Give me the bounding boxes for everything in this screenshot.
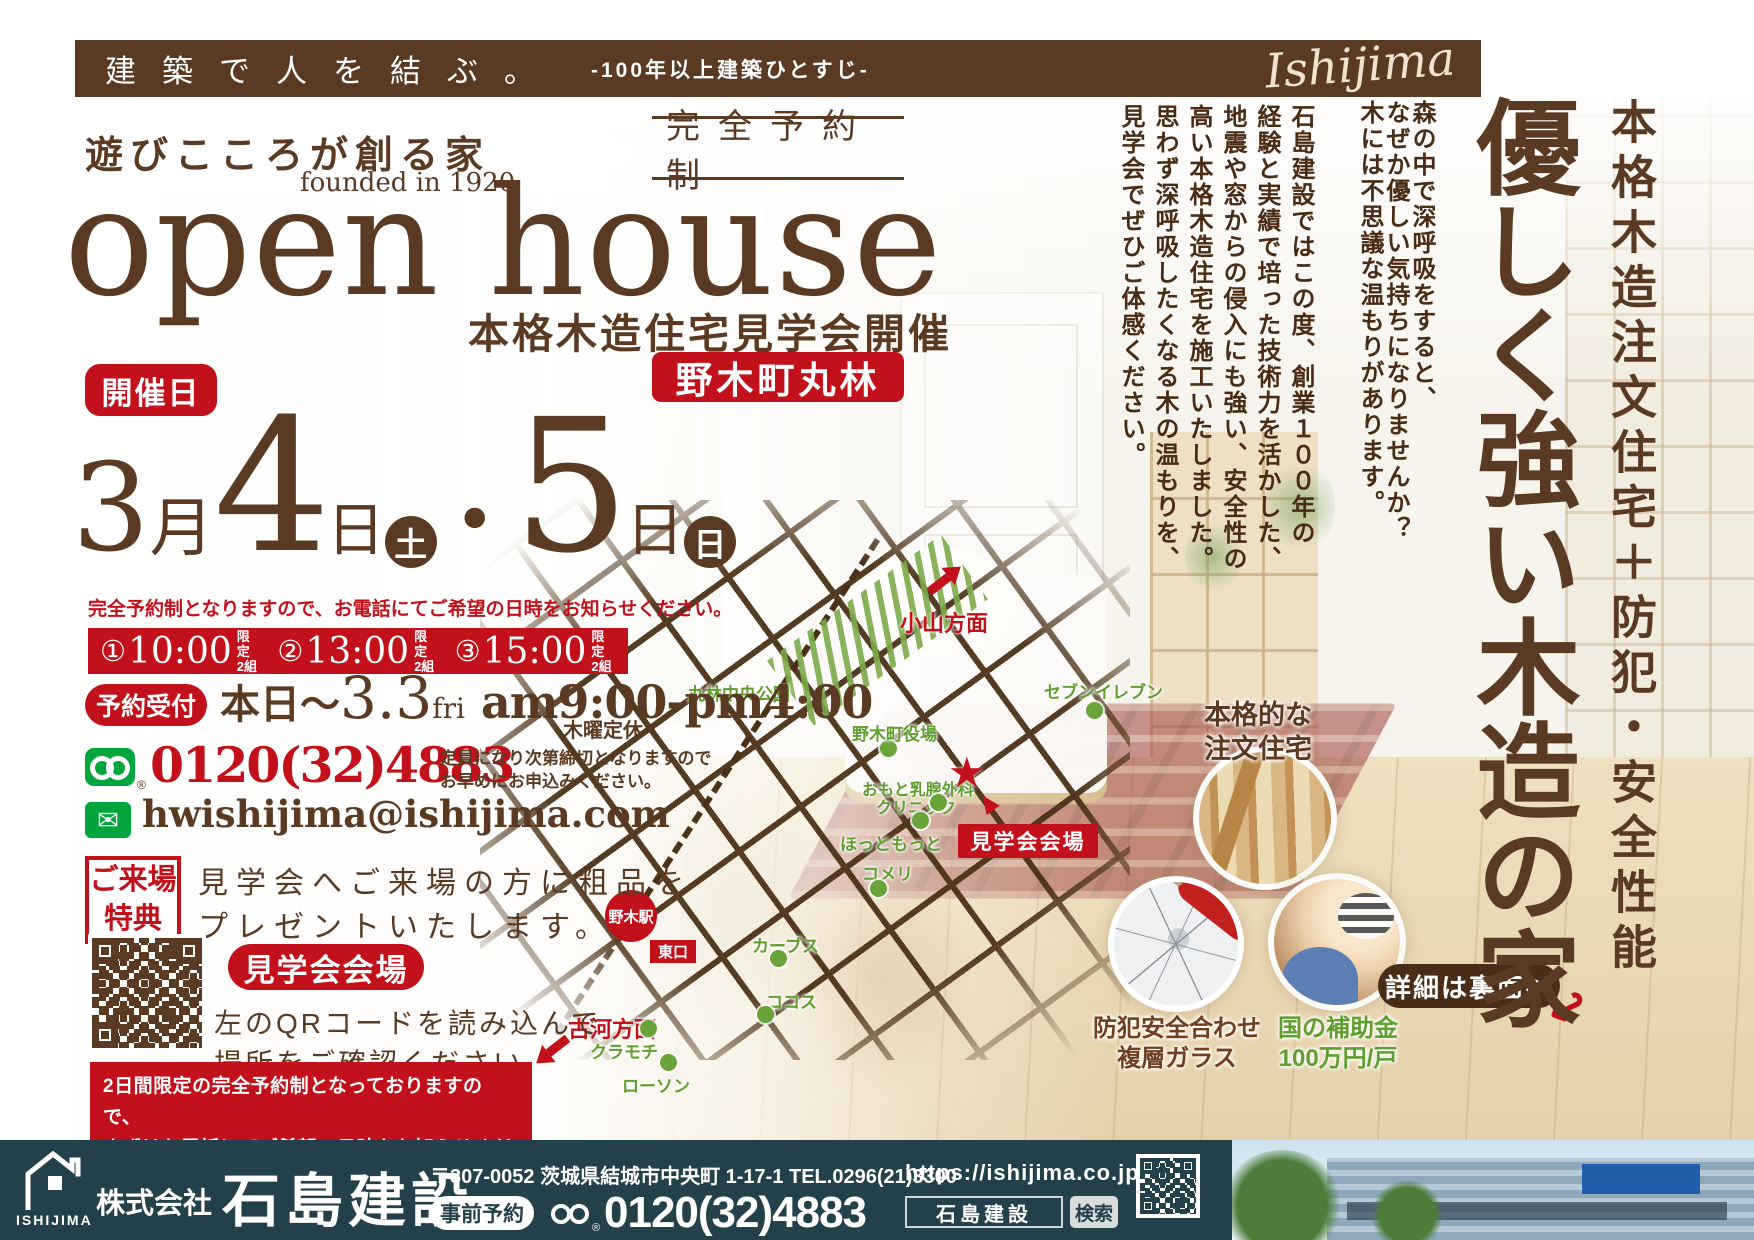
ishijima-script-logo: Ishijima	[1263, 31, 1457, 99]
reservation-only-box: 完全予約制	[652, 116, 904, 180]
footer-qr-code[interactable]	[1136, 1154, 1200, 1218]
phone-note-line2: お早めにお申込みください。	[440, 770, 712, 793]
message-p2-col3: 地震や窓からの侵入にも強い、安全性の	[1215, 104, 1250, 572]
feature3-line2: 100万円/戸	[1252, 1044, 1424, 1074]
warning-line1: 2日間限定の完全予約制となっておりますので、	[103, 1071, 519, 1133]
feature1-photo-timber-frame	[1193, 746, 1337, 890]
prebook-badge: 事前予約	[430, 1196, 534, 1230]
day-unit: 日	[327, 483, 385, 567]
map-spot-dot	[930, 794, 947, 811]
map-spot-cocos: ココス	[766, 988, 817, 1013]
feature3-label: 国の補助金 100万円/戸	[1252, 1014, 1424, 1074]
map-spot-dot	[870, 880, 887, 897]
gift-badge-line1: ご来場	[89, 861, 176, 900]
slot-cap-line1: 限定	[414, 629, 439, 659]
company-house-logo-icon	[22, 1150, 84, 1215]
venue-qr-code[interactable]	[88, 934, 206, 1052]
map-spot-dot	[1086, 702, 1103, 719]
day-unit: 日	[626, 483, 684, 567]
website-url[interactable]: https://ishijima.co.jp	[905, 1160, 1140, 1186]
date-separator: ・	[433, 454, 517, 575]
map-east-exit: 東口	[650, 940, 696, 963]
event-dates: 3 月 4 日 土 ・ 5 日 日	[72, 380, 736, 594]
freedial-icon	[85, 748, 135, 786]
reservation-warning-box: 2日間限定の完全予約制となっておりますので、 まずはお電話にてご希望の日時をお知…	[90, 1062, 532, 1144]
footer-freedial-icon	[548, 1200, 592, 1230]
map-venue-label: 見学会会場	[958, 824, 1098, 858]
message-p2-col4: 高い本格木造住宅を施工いたしました。	[1181, 104, 1216, 572]
feature3-line1: 国の補助金	[1252, 1014, 1424, 1044]
top-banner: 建築で人を結ぶ。 -100年以上建築ひとすじ- Ishijima	[75, 40, 1481, 97]
phone-note: 定員になり次第締切となりますので お早めにお申込みください。	[440, 747, 712, 793]
reservation-note: 完全予約制となりますので、お電話にてご希望の日時をお知らせください。	[88, 594, 732, 621]
booking-period: 本日〜 3.3 fri am9:00-pm4:00	[220, 664, 872, 732]
map-spot-dot	[640, 1020, 657, 1037]
vertical-main-title: 優しく強い木造の家	[1444, 94, 1595, 1030]
map-spot-hottomotto: ほっともっと	[840, 830, 942, 855]
map-spot-seveneleven: セブンイレブン	[1044, 678, 1163, 703]
banner-slogan: 建築で人を結ぶ。	[105, 46, 561, 91]
gift-badge: ご来場 特典	[85, 856, 181, 944]
message-p2-col6: 見学会でぜひご体感ください。	[1113, 104, 1148, 468]
month-unit: 月	[150, 477, 214, 569]
booking-deadline-weekday: fri	[432, 692, 465, 725]
map-spot-dot	[757, 1006, 774, 1023]
map-spot-komeri: コメリ	[862, 860, 913, 885]
slot-number: ①	[100, 634, 126, 668]
gift-text-line1: 見学会へご来場の方に粗品を	[198, 858, 692, 902]
feature1-label: 本格的な 注文住宅	[1204, 698, 1312, 766]
footer-building-photo	[1232, 1140, 1754, 1240]
booking-deadline: 3.3	[340, 664, 432, 732]
search-button[interactable]: 検索	[1070, 1196, 1118, 1228]
map-spot-dot	[912, 812, 929, 829]
venue-badge: 見学会会場	[228, 944, 424, 990]
vertical-headline: 本格木造注文住宅＋防犯・安全性能	[1598, 98, 1664, 978]
message-p2-col5: 思わず深呼吸したくなる木の温もりを、	[1147, 104, 1182, 572]
slot-cap-line1: 限定	[591, 629, 616, 659]
gift-text-line2: プレゼントいたします。	[198, 902, 613, 946]
slot-number: ③	[455, 634, 481, 668]
company-prefix: 株式会社	[96, 1180, 212, 1222]
email-address[interactable]: hwishijima@ishijima.com	[142, 792, 670, 836]
map-spot-lawson: ローソン	[622, 1072, 690, 1097]
company-address: 〒307-0052 茨城県結城市中央町 1-17-1 TEL.0296(21)3…	[430, 1160, 957, 1189]
company-logo-text: ISHIJIMA	[16, 1212, 93, 1228]
slot-time: 10:00	[128, 631, 232, 672]
registered-mark: ®	[137, 778, 146, 792]
feature1-line1: 本格的な	[1204, 698, 1312, 732]
booking-from: 本日〜	[220, 672, 340, 730]
phone-note-line1: 定員になり次第締切となりますので	[440, 747, 712, 770]
qr-note-line1: 左のQRコードを読み込んで	[214, 1002, 602, 1042]
feature2-photo-security-glass	[1108, 876, 1244, 1012]
feature2-label: 防犯安全合わせ 複層ガラス	[1082, 1014, 1272, 1074]
feature1-line2: 注文住宅	[1204, 732, 1312, 766]
booking-badge: 予約受付	[85, 684, 207, 726]
footer-phone-number: 0120(32)4883	[604, 1188, 866, 1238]
day1-number: 4	[214, 380, 327, 594]
booking-hours: am9:00-pm4:00	[481, 675, 872, 729]
tree-shape	[1232, 1150, 1342, 1240]
day2-number: 5	[513, 380, 626, 594]
message-p2-col1: 石島建設ではこの度、創業１００年の	[1283, 104, 1318, 546]
slot-cap-line1: 限定	[237, 629, 262, 659]
footer-registered-mark: ®	[592, 1222, 600, 1234]
map-spot-dot	[660, 1054, 677, 1071]
closed-day-note: 木曜定休	[563, 714, 643, 743]
map-venue-star-icon: ★	[948, 748, 986, 797]
feature2-line1: 防犯安全合わせ	[1082, 1014, 1272, 1044]
message-p1-col3: 木には不思議な温もりがあります。	[1352, 100, 1387, 516]
search-term-box[interactable]: 石島建設	[905, 1196, 1063, 1228]
map-spot-dot	[770, 950, 787, 967]
mail-icon: ✉	[85, 802, 131, 838]
day1-weekday-badge: 土	[385, 516, 437, 568]
day2-weekday-badge: 日	[684, 516, 736, 568]
slot-number: ②	[277, 634, 303, 668]
banner-subslogan: -100年以上建築ひとすじ-	[591, 54, 870, 84]
map-direction-oyama: 小山方面	[900, 606, 988, 638]
month-number: 3	[72, 437, 150, 579]
feature2-line2: 複層ガラス	[1082, 1044, 1272, 1074]
message-p2-col2: 経験と実績で培った技術力を活かした、	[1249, 104, 1284, 572]
